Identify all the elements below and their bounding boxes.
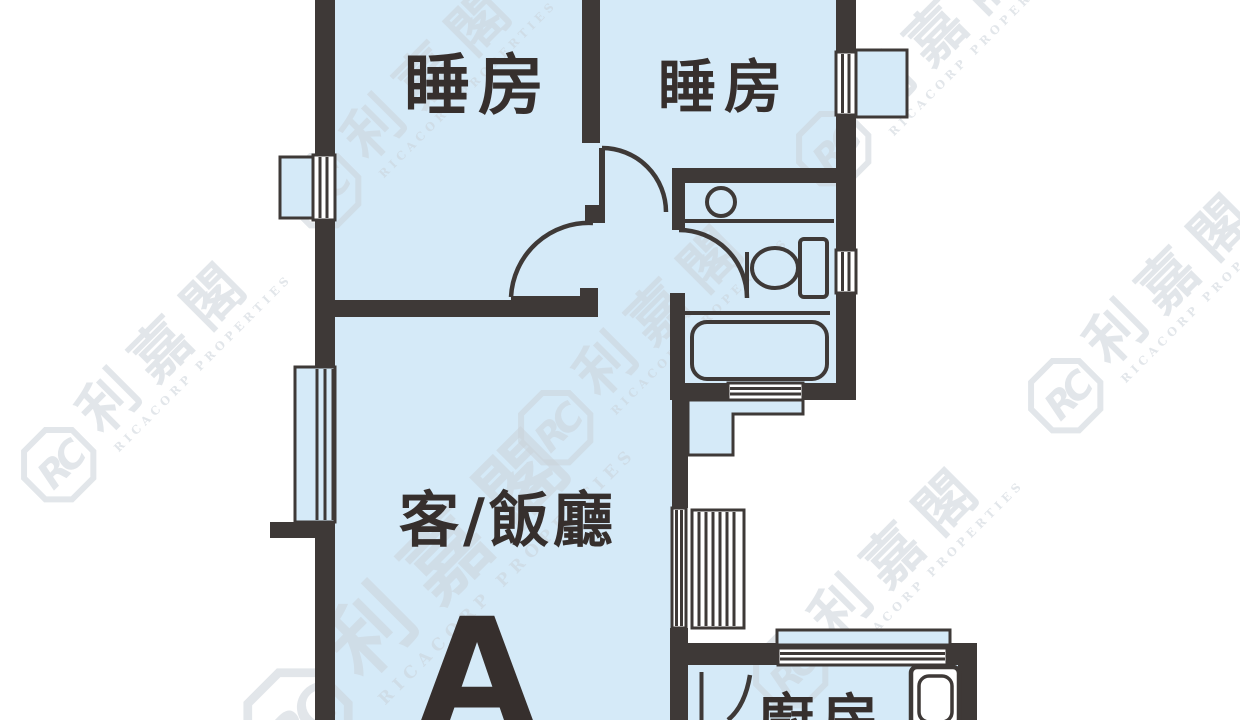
window-ledge-bedroom-left (280, 157, 314, 218)
door-bedroom-right (602, 148, 666, 212)
louvre-window-bathroom (728, 383, 803, 400)
window-living-left (295, 367, 335, 522)
door-bathroom (679, 230, 747, 298)
bathroom-fixtures (685, 188, 834, 379)
window-bedroom-right (836, 52, 856, 115)
window-bathroom (836, 250, 856, 293)
door-bedroom-left (511, 223, 593, 299)
plan-linework (0, 0, 1240, 720)
room-label-kitchen: 廚房 (758, 694, 886, 720)
room-label-bedroom-left: 睡房 (404, 53, 552, 119)
door-kitchen (702, 672, 751, 720)
floor-plan: RC 利嘉閣 RICACORP PROPERTIES RC 利嘉閣 RICACO… (0, 0, 1240, 720)
kitchen-fixtures (911, 667, 959, 720)
window-living-right (672, 508, 686, 628)
window-bedroom-left (313, 155, 335, 220)
bathroom-platform (688, 400, 803, 455)
toilet-icon (752, 239, 827, 297)
kitchen-window-sill (777, 630, 950, 645)
bathtub-icon (692, 322, 827, 379)
louvre-window-kitchen (778, 648, 947, 665)
washbasin-icon (707, 188, 735, 216)
kitchen-sink-basin (919, 676, 952, 720)
unit-label: A (417, 599, 536, 720)
room-label-bedroom-right: 睡房 (658, 58, 790, 116)
louvre-box (692, 510, 744, 628)
window-ledge-bedroom-right (855, 50, 907, 117)
room-label-living-dining: 客/飯廳 (399, 491, 617, 551)
